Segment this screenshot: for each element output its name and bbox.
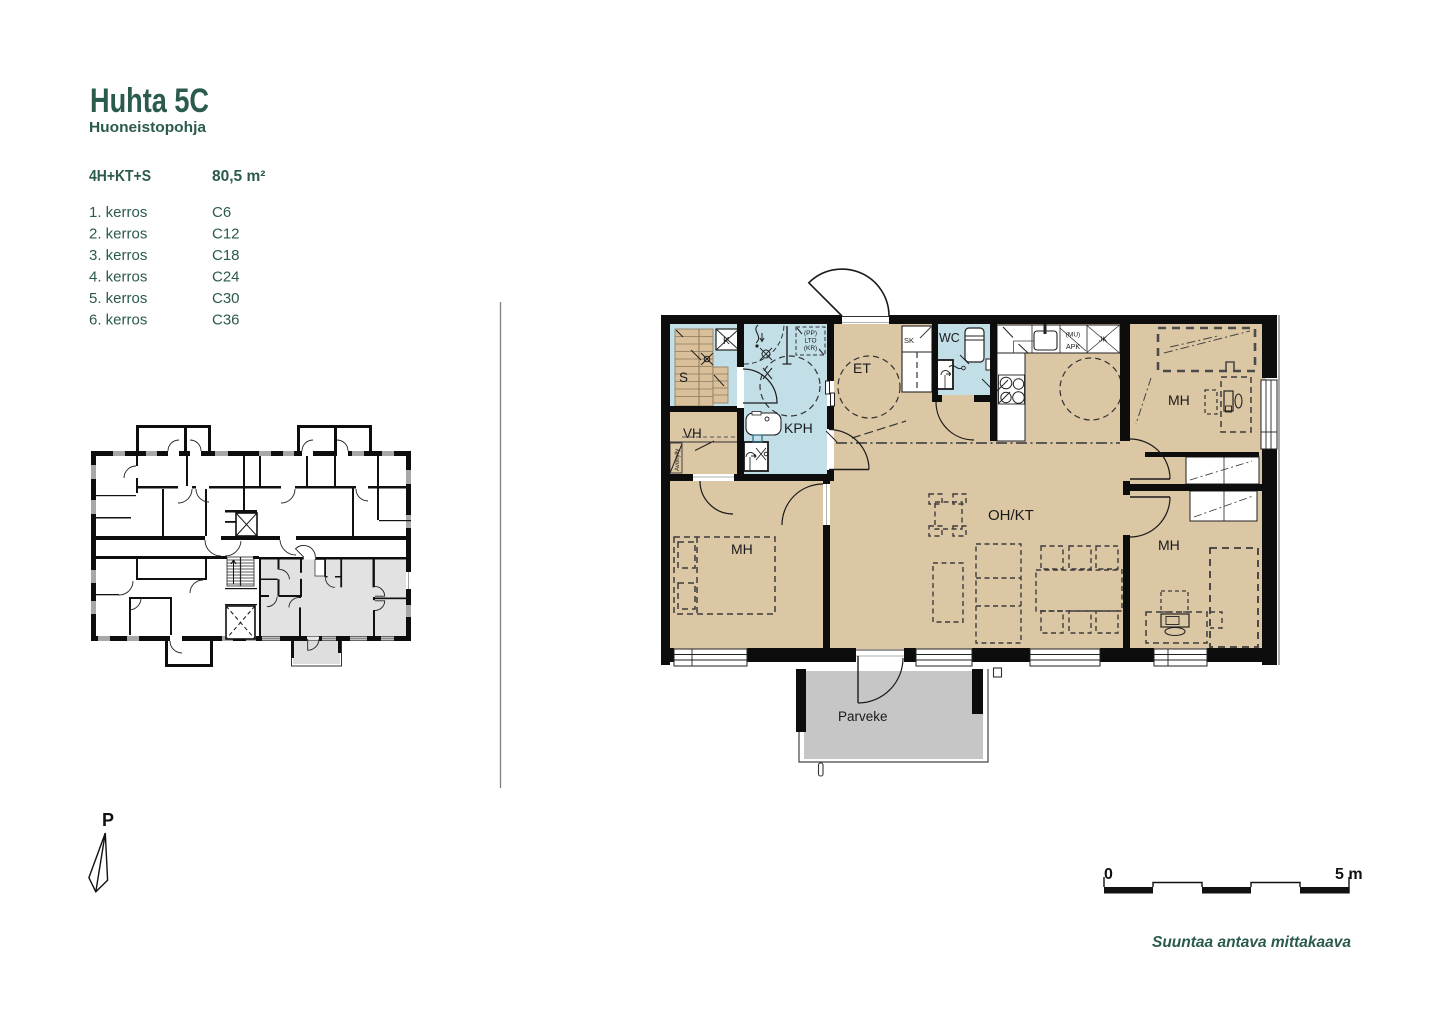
- svg-text:C18: C18: [212, 247, 240, 264]
- svg-text:APK: APK: [1066, 344, 1080, 351]
- svg-text:0: 0: [1104, 866, 1113, 883]
- svg-text:C30: C30: [212, 290, 240, 307]
- svg-text:K: K: [723, 336, 730, 347]
- svg-text:LTO: LTO: [804, 338, 816, 345]
- svg-text:MH: MH: [731, 541, 753, 557]
- svg-text:1. kerros: 1. kerros: [89, 204, 147, 221]
- svg-text:Huoneistopohja: Huoneistopohja: [89, 119, 207, 136]
- svg-text:ET: ET: [853, 360, 871, 376]
- svg-text:OH/KT: OH/KT: [988, 507, 1034, 524]
- svg-text:4. kerros: 4. kerros: [89, 269, 147, 286]
- svg-text:3. kerros: 3. kerros: [89, 247, 147, 264]
- svg-text:5. kerros: 5. kerros: [89, 290, 147, 307]
- svg-text:Suuntaa antava mittakaava: Suuntaa antava mittakaava: [1152, 934, 1351, 951]
- svg-text:C12: C12: [212, 226, 240, 243]
- svg-text:Parveke: Parveke: [838, 709, 888, 724]
- svg-text:WC: WC: [939, 331, 960, 345]
- svg-text:S: S: [679, 370, 688, 385]
- svg-text:(PP): (PP): [804, 330, 817, 337]
- svg-text:MH: MH: [1168, 392, 1190, 408]
- svg-text:(MU): (MU): [1066, 332, 1080, 339]
- svg-text:80,5 m²: 80,5 m²: [212, 168, 265, 185]
- svg-text:P: P: [102, 810, 114, 830]
- svg-text:C24: C24: [212, 269, 240, 286]
- svg-text:2. kerros: 2. kerros: [89, 226, 147, 243]
- svg-text:JK: JK: [1099, 337, 1108, 344]
- svg-text:Huhta 5C: Huhta 5C: [90, 82, 209, 120]
- svg-text:(KR): (KR): [804, 345, 817, 352]
- svg-text:VH: VH: [683, 426, 702, 441]
- svg-text:KPH: KPH: [784, 420, 813, 436]
- svg-text:MH: MH: [1158, 537, 1180, 553]
- svg-text:C6: C6: [212, 204, 231, 221]
- svg-text:C36: C36: [212, 312, 240, 329]
- svg-text:4H+KT+S: 4H+KT+S: [89, 168, 151, 185]
- svg-text:SK: SK: [904, 336, 914, 345]
- svg-text:6. kerros: 6. kerros: [89, 312, 147, 329]
